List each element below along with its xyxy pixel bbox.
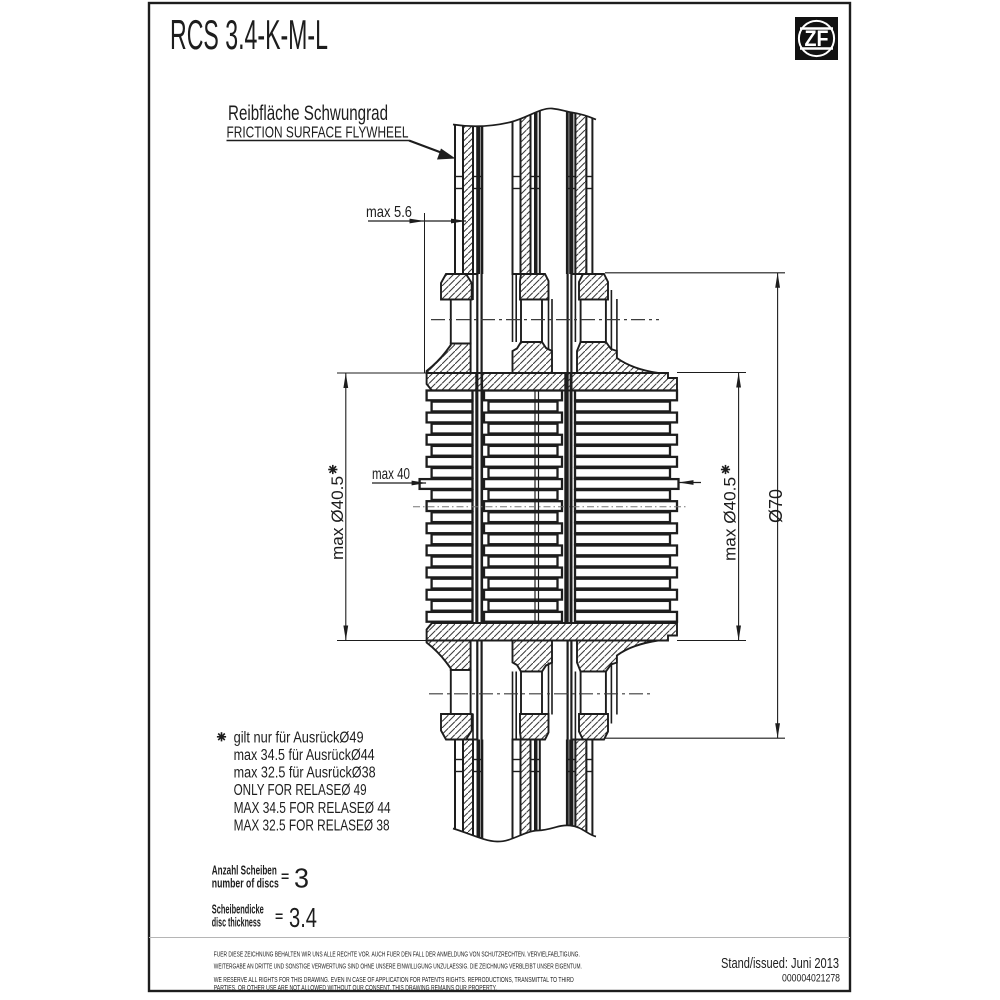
- svg-text:WEITERGABE AN DRITTE UND SONST: WEITERGABE AN DRITTE UND SONSTIGE VERWER…: [214, 962, 582, 971]
- svg-text:gilt nur für AusrückØ49: gilt nur für AusrückØ49: [234, 729, 364, 746]
- svg-text:max Ø40.5: max Ø40.5: [328, 476, 347, 560]
- svg-text:max 34.5 für AusrückØ44: max 34.5 für AusrückØ44: [234, 747, 375, 764]
- svg-text:PARTIES, OR OTHER USE ARE NOT: PARTIES, OR OTHER USE ARE NOT ALLOWED WI…: [214, 983, 497, 992]
- svg-text:MAX 32.5 FOR RELASEØ 38: MAX 32.5 FOR RELASEØ 38: [234, 817, 390, 834]
- svg-text:Stand/issued: Juni 2013: Stand/issued: Juni 2013: [721, 955, 839, 972]
- svg-text:FRICTION SURFACE FLYWHEEL: FRICTION SURFACE FLYWHEEL: [227, 125, 409, 142]
- svg-text:max 40: max 40: [372, 466, 410, 483]
- svg-text:=: =: [281, 868, 289, 884]
- svg-text:ONLY FOR RELASEØ 49: ONLY FOR RELASEØ 49: [234, 782, 367, 799]
- svg-text:000004021278: 000004021278: [782, 973, 840, 985]
- svg-text:FUER DIESE ZEICHNUNG BEHALTEN: FUER DIESE ZEICHNUNG BEHALTEN WIR UNS AL…: [214, 949, 580, 958]
- svg-text:max 32.5 für AusrückØ38: max 32.5 für AusrückØ38: [234, 765, 376, 782]
- svg-text:Anzahl Scheiben: Anzahl Scheiben: [212, 864, 277, 878]
- svg-text:MAX 34.5 FOR RELASEØ 44: MAX 34.5 FOR RELASEØ 44: [234, 800, 391, 817]
- svg-text:number of discs: number of discs: [212, 877, 279, 891]
- svg-text:ZF: ZF: [805, 26, 829, 51]
- svg-text:Reibfläche Schwungrad: Reibfläche Schwungrad: [228, 102, 388, 125]
- svg-text:RCS 3.4-K-M-L: RCS 3.4-K-M-L: [170, 11, 328, 58]
- svg-text:Scheibendicke: Scheibendicke: [212, 903, 264, 917]
- svg-text:max 5.6: max 5.6: [366, 204, 412, 221]
- svg-text:3: 3: [294, 863, 309, 894]
- svg-text:Ø70: Ø70: [766, 489, 786, 523]
- svg-text:3.4: 3.4: [289, 902, 317, 933]
- svg-text:disc thickness: disc thickness: [212, 916, 261, 930]
- svg-text:=: =: [275, 908, 283, 924]
- svg-text:max Ø40.5: max Ø40.5: [721, 477, 740, 561]
